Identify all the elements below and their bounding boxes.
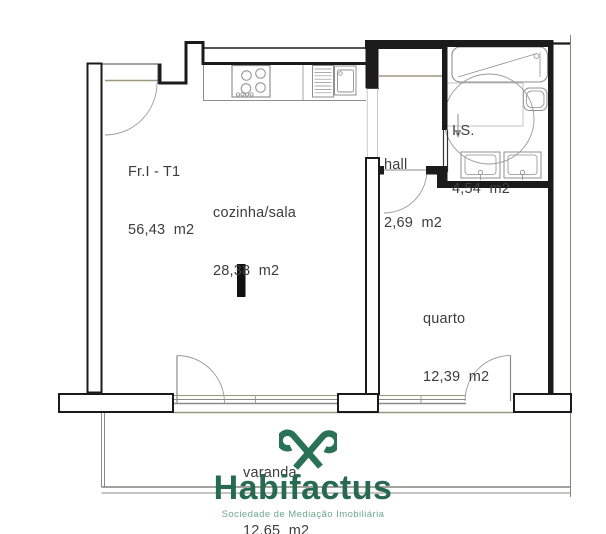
unit-area: 56,43 m2	[128, 221, 194, 240]
hall-opening	[366, 89, 379, 158]
room-label-is: I.S. 4,54 m2	[452, 84, 510, 237]
logo-tagline: Sociedade de Mediação Imobiliária	[0, 509, 606, 520]
room-area: 12,65 m2	[243, 522, 309, 534]
is-top-wall	[447, 40, 553, 47]
hall-top-wall	[365, 40, 447, 49]
bottom-right-wall	[514, 394, 571, 412]
room-name: hall	[384, 156, 442, 175]
kitchen-sink-icon	[313, 66, 357, 98]
room-area: 2,69 m2	[384, 214, 442, 233]
room-label-cozinha: cozinha/sala 28,38 m2	[213, 166, 296, 319]
bottom-mid-wall	[338, 394, 378, 412]
room-area: 28,38 m2	[213, 262, 296, 281]
living-window	[173, 396, 338, 405]
stove-icon	[232, 66, 270, 98]
room-name: quarto	[423, 310, 489, 329]
room-area: 4,54 m2	[452, 180, 510, 199]
room-label-hall: hall 2,69 m2	[384, 118, 442, 271]
bottom-left-wall	[59, 394, 173, 412]
bathtub-icon	[452, 47, 548, 82]
kitchen-fixtures	[204, 64, 367, 101]
left-wall	[88, 64, 102, 393]
habifactus-heart-icon	[279, 422, 337, 472]
is-left-wall	[442, 45, 448, 130]
room-area: 12,39 m2	[423, 368, 489, 387]
unit-name: Fr.I - T1	[128, 163, 194, 182]
toilet-icon	[524, 88, 548, 111]
logo-name: Habifactus	[0, 471, 606, 507]
room-name: I.S.	[452, 122, 510, 141]
room-name: cozinha/sala	[213, 204, 296, 223]
floorplan-page: Fr.I - T1 56,43 m2 cozinha/sala 28,38 m2…	[0, 0, 606, 534]
living-quarto-wall	[366, 158, 379, 394]
room-label-quarto: quarto 12,39 m2	[423, 272, 489, 425]
unit-label: Fr.I - T1 56,43 m2	[128, 125, 194, 278]
is-door-leaf	[444, 130, 448, 172]
right-wall	[548, 40, 554, 394]
